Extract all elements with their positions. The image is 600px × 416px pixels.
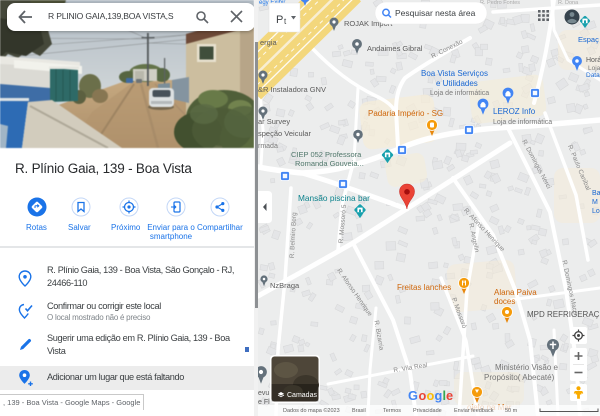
svg-text:Loja de informática: Loja de informática	[430, 90, 489, 97]
svg-text:Termos: Termos	[383, 408, 401, 414]
svg-text:e Fl: e Fl	[258, 399, 270, 406]
svg-text:Dados do mapa ©2023: Dados do mapa ©2023	[283, 407, 340, 414]
svg-text:Ba: Ba	[592, 190, 600, 197]
svg-text:Padaria Império - SG: Padaria Império - SG	[368, 109, 443, 118]
svg-text:Loja: Loja	[588, 65, 600, 72]
svg-text:ergia: ergia	[260, 38, 278, 47]
svg-text:Camadas: Camadas	[287, 392, 317, 399]
svg-text:NzBraga: NzBraga	[270, 281, 300, 290]
svg-text:Data: Data	[586, 72, 600, 79]
svg-text:MPD REFRIGERAÇ: MPD REFRIGERAÇ	[527, 310, 600, 319]
svg-text:Loja de informática: Loja de informática	[493, 119, 552, 126]
svg-text:Espaç: Espaç	[578, 35, 599, 44]
svg-text:Boa Vista Serviços: Boa Vista Serviços	[421, 69, 488, 78]
svg-text:Propósito( Abecaté): Propósito( Abecaté)	[484, 373, 555, 382]
svg-text:G: G	[408, 388, 418, 403]
svg-text:e Utilidades: e Utilidades	[436, 79, 478, 88]
svg-text:R. Belmiro Berg: R. Belmiro Berg	[289, 212, 298, 259]
svg-text:doces: doces	[494, 297, 515, 306]
svg-text:R. Pedro Fontes: R. Pedro Fontes	[480, 0, 520, 6]
svg-text:50 m: 50 m	[505, 408, 518, 414]
svg-text:Lo: Lo	[592, 208, 600, 215]
svg-text:M: M	[592, 199, 598, 206]
svg-text:evu: evu	[258, 390, 269, 397]
svg-text:R. Dona: R. Dona	[558, 0, 579, 6]
svg-text:Ministério Visão e: Ministério Visão e	[495, 363, 559, 372]
svg-text:e: e	[446, 388, 453, 403]
svg-text:g: g	[435, 388, 443, 403]
svg-text:Andaimes Gibral: Andaimes Gibral	[367, 44, 423, 53]
svg-text:Mansão piscina bar: Mansão piscina bar	[298, 193, 370, 203]
svg-text:P: P	[276, 14, 283, 26]
svg-text:Horá: Horá	[586, 57, 600, 64]
svg-text:CIEP 052 Professora: CIEP 052 Professora	[291, 150, 362, 159]
svg-text:Brasil: Brasil	[352, 408, 366, 414]
svg-text:Romanda Gouveia...: Romanda Gouveia...	[295, 159, 364, 168]
svg-text:speção Veicular: speção Veicular	[258, 129, 311, 138]
svg-text:LEROZ Info: LEROZ Info	[493, 107, 536, 116]
svg-text:Enviar feedback: Enviar feedback	[454, 408, 494, 414]
svg-text:Pesquisar nesta área: Pesquisar nesta área	[395, 8, 476, 18]
svg-text:o: o	[427, 388, 435, 403]
svg-text:o: o	[419, 388, 427, 403]
svg-text:Privacidade: Privacidade	[413, 408, 442, 414]
svg-text:rmada: rmada	[258, 143, 278, 150]
svg-text:&R Instaladora GNV: &R Instaladora GNV	[258, 85, 326, 94]
svg-text:Freitas lanches: Freitas lanches	[397, 283, 451, 292]
svg-text:Alana Paiva: Alana Paiva	[494, 288, 537, 297]
